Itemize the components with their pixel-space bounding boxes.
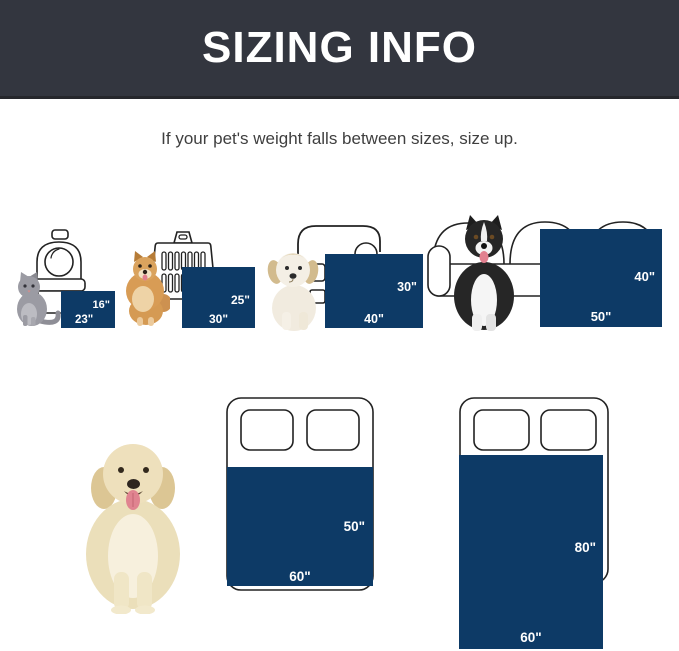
height-label: 25" [231, 294, 250, 306]
height-label: 50" [344, 520, 365, 534]
header-band: SIZING INFO [0, 0, 679, 99]
page-title: SIZING INFO [202, 23, 477, 73]
subtitle-text: If your pet's weight falls between sizes… [0, 129, 679, 149]
blanket-swatch-60x80: 80" 60" [459, 455, 603, 649]
width-label: 50" [540, 310, 662, 323]
pomeranian-illustration [122, 247, 170, 327]
width-label: 60" [227, 570, 373, 584]
blanket-swatch-23x16: 16" 23" [61, 291, 115, 328]
width-label: 30" [182, 313, 255, 325]
sizing-info-graphic: SIZING INFO If your pet's weight falls b… [0, 0, 679, 651]
cat-illustration [12, 271, 62, 327]
width-label: 40" [325, 313, 423, 326]
height-label: 16" [93, 300, 110, 311]
golden-retriever-illustration [58, 426, 206, 614]
border-collie-illustration [441, 212, 525, 332]
height-label: 40" [634, 270, 655, 283]
height-label: 80" [575, 541, 596, 555]
blanket-swatch-60x50: 50" 60" [227, 467, 373, 586]
blanket-swatch-30x25: 25" 30" [182, 267, 255, 328]
height-label: 30" [397, 281, 417, 294]
width-label: 23" [75, 315, 93, 327]
width-label: 60" [459, 631, 603, 645]
blanket-swatch-40x30: 30" 40" [325, 254, 423, 328]
puppy-illustration [264, 246, 324, 332]
blanket-swatch-50x40: 40" 50" [540, 229, 662, 327]
